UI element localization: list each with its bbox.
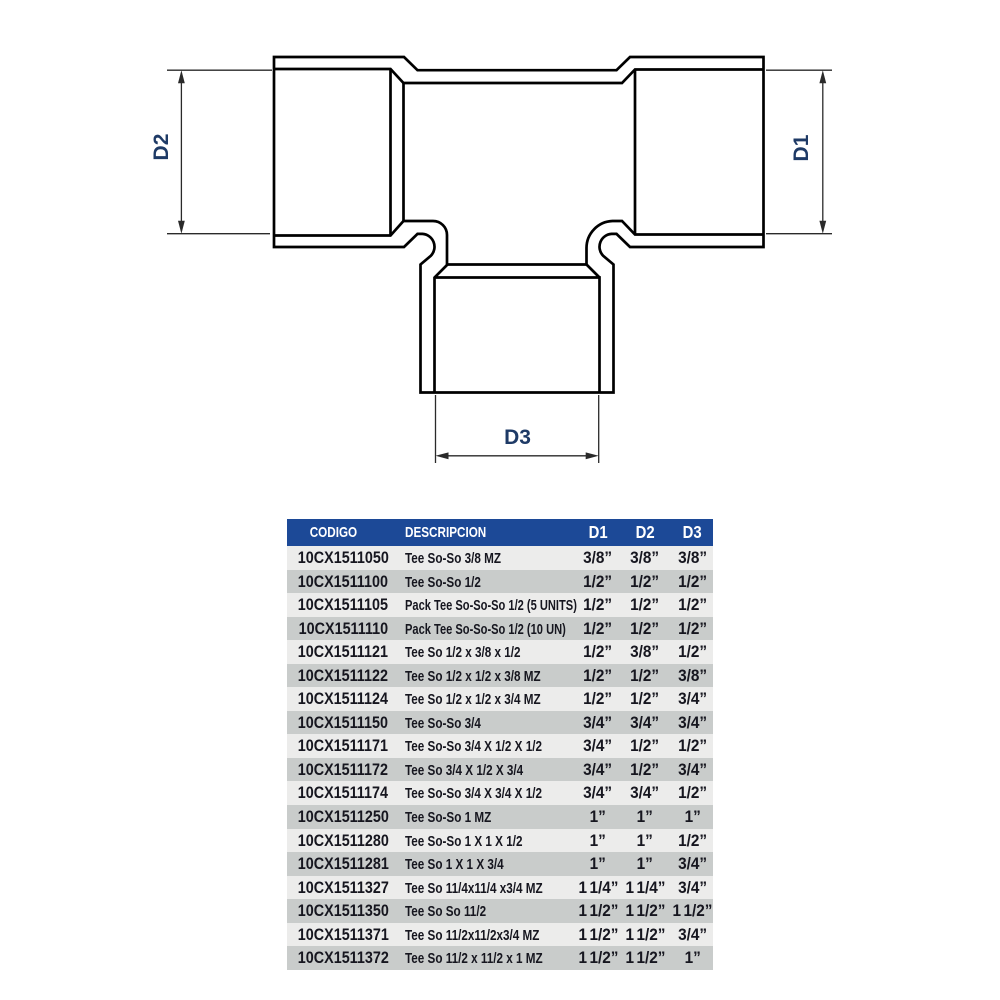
svg-text:D1: D1 [790,134,813,161]
svg-text:D3: D3 [504,426,531,449]
svg-text:D2: D2 [150,134,173,161]
